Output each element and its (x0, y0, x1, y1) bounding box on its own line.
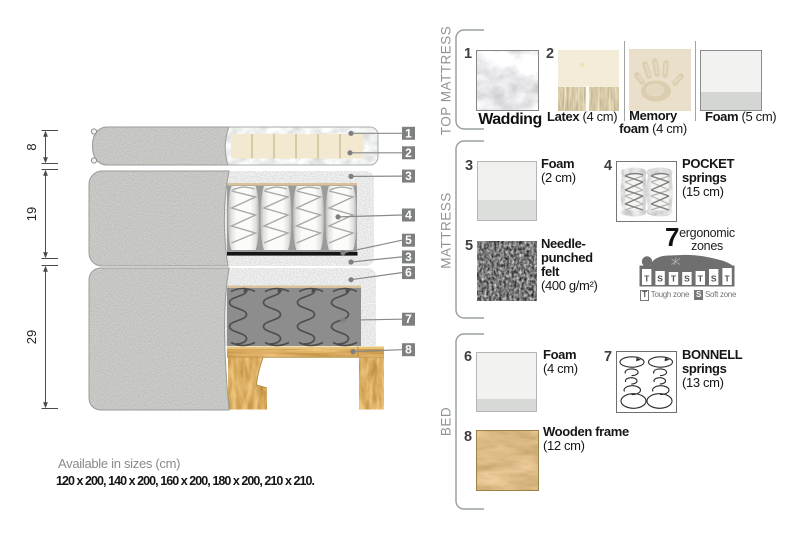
svg-text:3: 3 (405, 169, 412, 183)
svg-text:T: T (724, 274, 730, 284)
svg-text:1: 1 (405, 126, 412, 140)
svg-text:19: 19 (24, 207, 39, 221)
svg-text:T: T (644, 274, 650, 284)
svg-text:S: S (711, 274, 717, 284)
svg-text:5: 5 (405, 233, 412, 247)
svg-text:S: S (684, 274, 690, 284)
svg-text:T: T (698, 274, 704, 284)
svg-text:S: S (657, 274, 663, 284)
svg-text:6: 6 (405, 266, 412, 280)
svg-text:2: 2 (405, 146, 412, 160)
svg-text:8: 8 (24, 143, 39, 150)
svg-text:29: 29 (24, 330, 39, 344)
svg-text:8: 8 (405, 343, 412, 357)
svg-text:3: 3 (405, 250, 412, 264)
svg-text:4: 4 (405, 208, 412, 222)
svg-text:7: 7 (405, 312, 412, 326)
svg-text:T: T (671, 274, 677, 284)
